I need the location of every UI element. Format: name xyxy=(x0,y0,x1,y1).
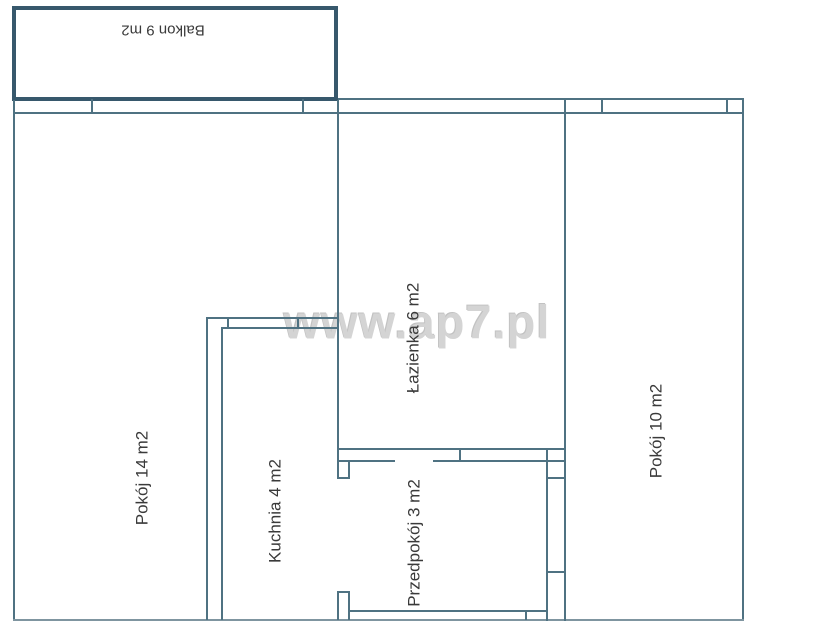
window-tick-balcony-1 xyxy=(91,99,93,114)
wall-lazienka-bottom-inner-left xyxy=(337,460,395,462)
room-label-przedpokoj: Przedpokój 3 m2 xyxy=(406,479,423,607)
room-label-pokoj-14: Pokój 14 m2 xyxy=(134,431,151,526)
room-label-pokoj-10: Pokój 10 m2 xyxy=(648,384,665,479)
przedpokoj-bottom-tick xyxy=(525,610,527,620)
doorjamb-kuchnia-lower-right xyxy=(348,591,350,620)
wall-bottom xyxy=(13,619,744,621)
wall-kuchnia-top-outer xyxy=(206,317,338,319)
room-label-balkon: Balkon 9 m2 xyxy=(121,23,204,38)
wall-top-outer xyxy=(338,98,744,100)
przedpokoj-door-connector-top xyxy=(546,477,566,479)
window-tick-balcony-2 xyxy=(302,99,304,114)
kuchnia-top-tick-2 xyxy=(297,317,299,329)
wall-left xyxy=(13,100,15,621)
window-tick-pokoj10-1 xyxy=(601,98,603,114)
wall-center-vertical-upper xyxy=(337,100,339,478)
doorjamb-kuchnia-lower-top xyxy=(337,591,350,593)
wall-pokoj14-kuchnia-right xyxy=(221,327,223,620)
wall-right xyxy=(742,98,744,621)
wall-przedpokoj-pokoj10-right xyxy=(564,98,566,621)
room-label-kuchnia: Kuchnia 4 m2 xyxy=(267,459,284,563)
floorplan-canvas: www.ap7.pl Balkon 9 m2 Pokój 14 m2 Kuchn… xyxy=(0,0,825,635)
wall-kuchnia-top-inner xyxy=(221,327,338,329)
window-tick-pokoj10-2 xyxy=(726,98,728,114)
wall-pokoj14-kuchnia-left xyxy=(206,317,208,620)
balcony-outline xyxy=(12,6,338,101)
przedpokoj-door-connector-bottom xyxy=(546,571,566,573)
room-label-lazienka: Łazienka 6 m2 xyxy=(405,283,422,394)
wall-lazienka-bottom-outer xyxy=(337,448,566,450)
wall-center-vertical-lower xyxy=(337,591,339,620)
lazienka-bottom-tick xyxy=(459,448,461,462)
wall-przedpokoj-bottom-inner xyxy=(350,610,547,612)
doorjamb-kuchnia-upper-bottom xyxy=(337,477,350,479)
wall-przedpokoj-pokoj10-left xyxy=(546,448,548,621)
kuchnia-top-tick-1 xyxy=(227,317,229,329)
wall-top-inner xyxy=(13,112,744,114)
